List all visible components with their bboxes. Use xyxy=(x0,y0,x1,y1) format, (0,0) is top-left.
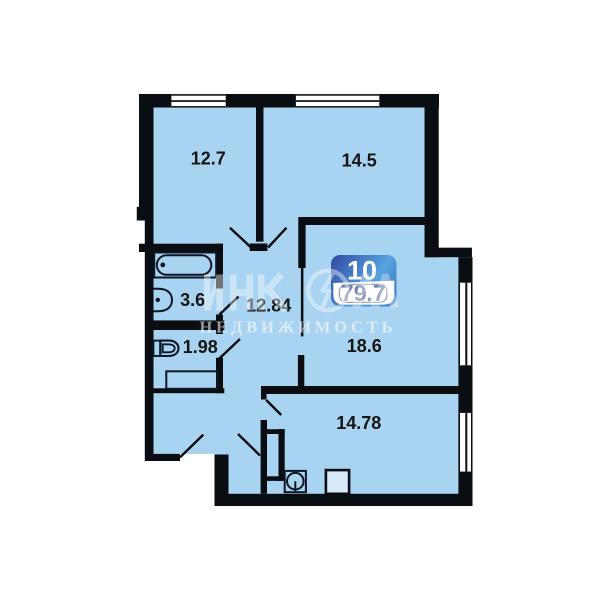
svg-text:18.6: 18.6 xyxy=(347,336,382,356)
svg-text:1.98: 1.98 xyxy=(183,337,218,357)
svg-text:14.78: 14.78 xyxy=(336,413,381,433)
svg-text:3.6: 3.6 xyxy=(180,290,205,310)
svg-text:12.7: 12.7 xyxy=(191,148,226,168)
svg-text:14.5: 14.5 xyxy=(342,151,377,171)
